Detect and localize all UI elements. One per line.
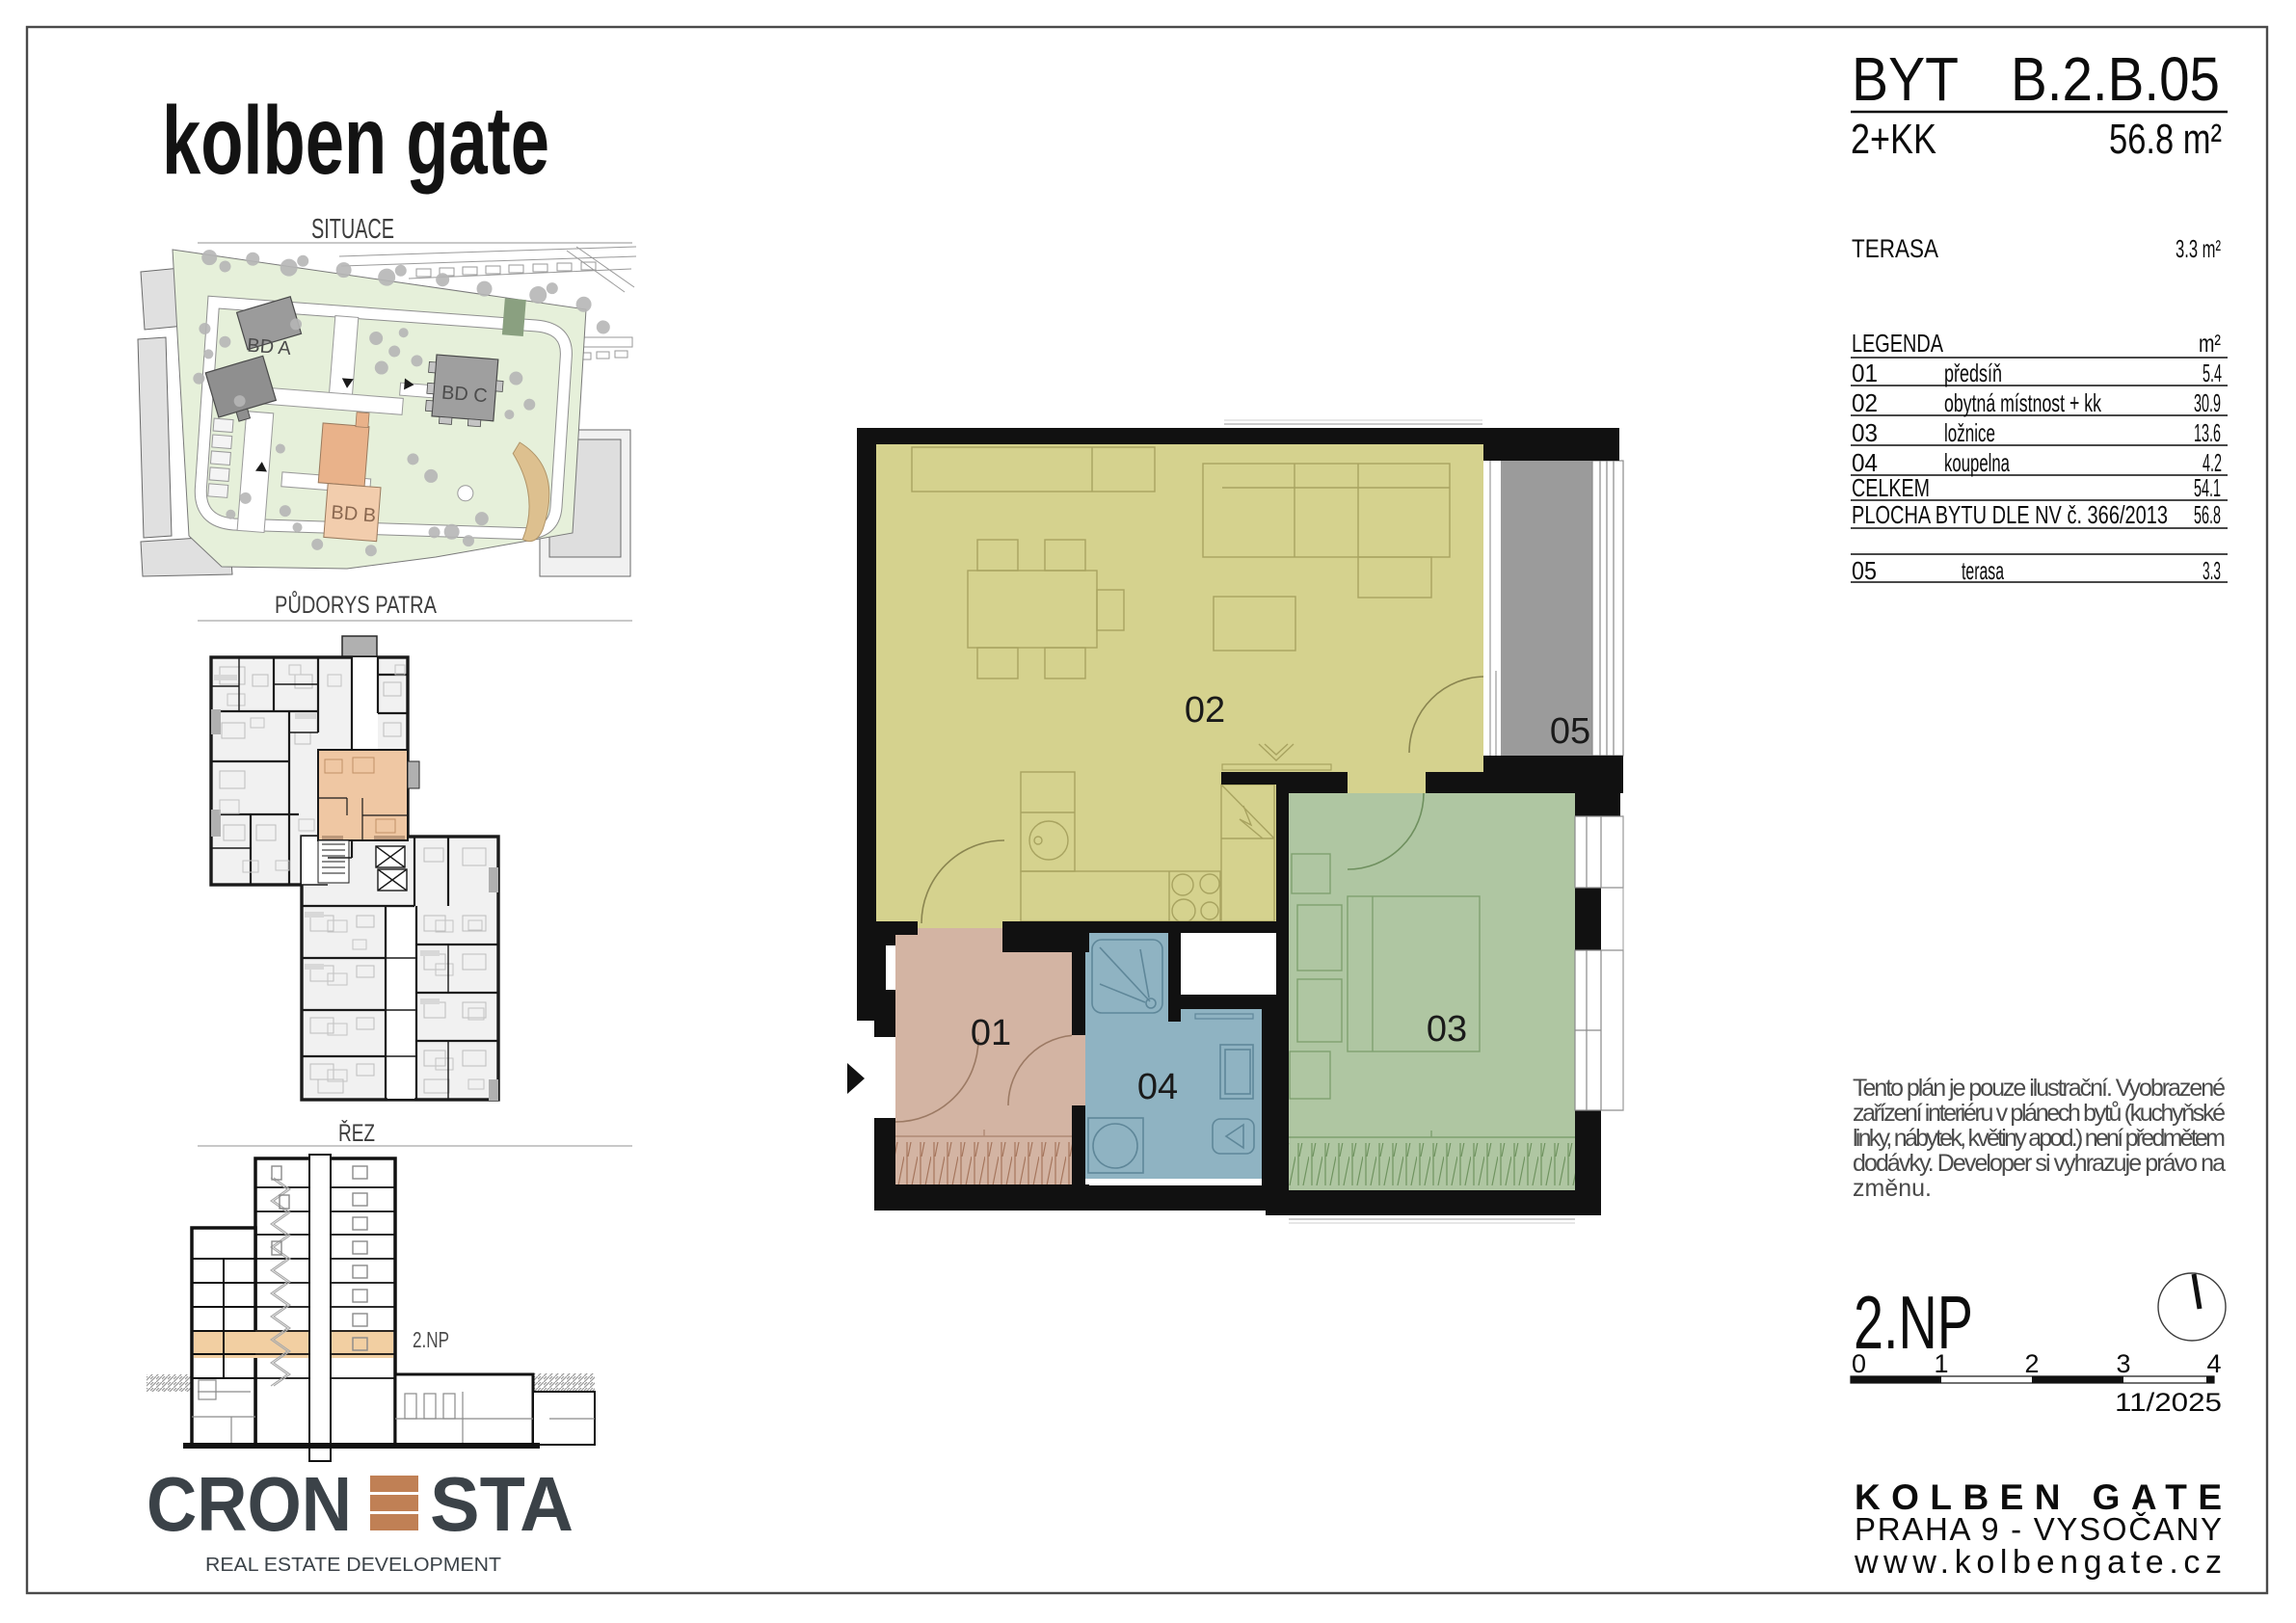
svg-text:05: 05: [1852, 556, 1877, 585]
svg-text:koupelna: koupelna: [1944, 448, 2010, 477]
svg-text:13.6: 13.6: [2194, 418, 2221, 447]
svg-text:3.3: 3.3: [2203, 556, 2221, 585]
svg-text:0: 0: [1852, 1349, 1866, 1378]
svg-text:TERASA: TERASA: [1852, 234, 1938, 263]
svg-text:obytná místnost + kk: obytná místnost + kk: [1944, 388, 2102, 417]
svg-text:předsíň: předsíň: [1944, 359, 2002, 387]
svg-text:01: 01: [1852, 359, 1878, 387]
svg-text:linky, nábytek, květiny apod.): linky, nábytek, květiny apod.) není před…: [1853, 1125, 2226, 1152]
svg-text:BD A: BD A: [247, 335, 293, 360]
svg-text:4: 4: [2206, 1349, 2221, 1378]
svg-text:2: 2: [2024, 1349, 2039, 1378]
svg-text:2.NP: 2.NP: [413, 1327, 449, 1352]
svg-text:ŘEZ: ŘEZ: [338, 1119, 375, 1147]
svg-text:PLOCHA BYTU DLE NV č. 366/2013: PLOCHA BYTU DLE NV č. 366/2013: [1852, 500, 2168, 529]
svg-text:2.NP: 2.NP: [1854, 1280, 1973, 1365]
svg-text:BYT: BYT: [1852, 44, 1959, 114]
svg-text:04: 04: [1137, 1067, 1178, 1107]
svg-text:dodávky. Developer si vyhrazuj: dodávky. Developer si vyhrazuje právo na: [1853, 1150, 2226, 1177]
svg-text:03: 03: [1427, 1009, 1467, 1050]
svg-text:54.1: 54.1: [2194, 473, 2221, 502]
svg-text:5.4: 5.4: [2203, 359, 2222, 387]
svg-text:LEGENDA: LEGENDA: [1852, 329, 1944, 358]
svg-text:2+KK: 2+KK: [1851, 116, 1936, 163]
svg-text:kolben gate: kolben gate: [162, 87, 549, 195]
svg-text:STA: STA: [430, 1461, 574, 1547]
svg-text:CELKEM: CELKEM: [1852, 473, 1930, 502]
svg-text:B.2.B.05: B.2.B.05: [2011, 44, 2220, 114]
svg-text:terasa: terasa: [1962, 556, 2004, 585]
svg-text:11/2025: 11/2025: [2115, 1388, 2222, 1417]
svg-text:03: 03: [1852, 418, 1878, 447]
svg-text:01: 01: [971, 1013, 1011, 1053]
svg-text:SITUACE: SITUACE: [311, 214, 394, 245]
svg-text:30.9: 30.9: [2194, 388, 2221, 417]
svg-text:zařízení interiéru v plánech b: zařízení interiéru v plánech bytů (kuchy…: [1853, 1100, 2226, 1127]
svg-text:REAL ESTATE DEVELOPMENT: REAL ESTATE DEVELOPMENT: [205, 1555, 501, 1576]
svg-text:CRON: CRON: [147, 1461, 352, 1547]
svg-text:1: 1: [1934, 1349, 1948, 1378]
svg-text:05: 05: [1550, 711, 1590, 752]
svg-text:BD B: BD B: [331, 502, 377, 527]
svg-text:změnu.: změnu.: [1853, 1175, 1932, 1202]
svg-text:02: 02: [1185, 690, 1225, 731]
svg-text:BD C: BD C: [441, 383, 488, 408]
svg-text:02: 02: [1852, 388, 1878, 417]
svg-text:PŮDORYS PATRA: PŮDORYS PATRA: [275, 589, 437, 619]
svg-text:m²: m²: [2199, 329, 2221, 358]
svg-text:56.8 m²: 56.8 m²: [2109, 116, 2222, 163]
svg-text:3: 3: [2116, 1349, 2130, 1378]
svg-text:56.8: 56.8: [2194, 500, 2221, 529]
svg-text:3.3 m²: 3.3 m²: [2176, 234, 2221, 263]
svg-text:Tento plán je pouze ilustrační: Tento plán je pouze ilustrační. Vyobraze…: [1853, 1075, 2226, 1102]
svg-text:ložnice: ložnice: [1944, 418, 1995, 447]
svg-text:PRAHA 9 - VYSOČANY: PRAHA 9 - VYSOČANY: [1855, 1511, 2222, 1547]
